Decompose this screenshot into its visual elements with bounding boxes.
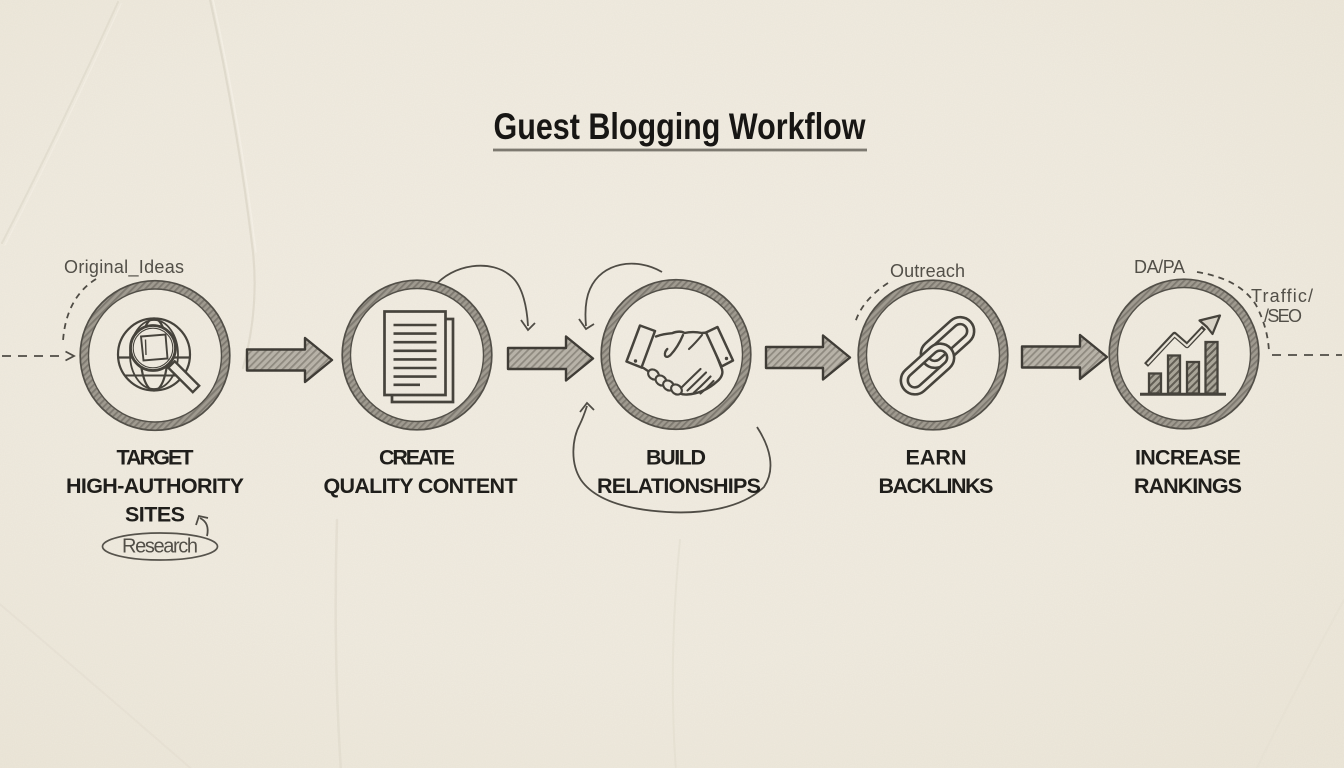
svg-text:SITES: SITES	[125, 503, 185, 527]
svg-text:HIGH-AUTHORITY: HIGH-AUTHORITY	[66, 474, 244, 498]
svg-text:CREATE: CREATE	[379, 446, 455, 470]
svg-text:BUILD: BUILD	[646, 446, 706, 470]
svg-text:DA/PA: DA/PA	[1134, 257, 1185, 277]
svg-text:Research: Research	[122, 536, 198, 558]
svg-text:Guest Blogging Workflow: Guest Blogging Workflow	[494, 106, 866, 147]
svg-text:/SEO: /SEO	[1264, 306, 1302, 326]
svg-text:RANKINGS: RANKINGS	[1134, 474, 1242, 498]
svg-text:EARN: EARN	[906, 446, 967, 470]
svg-text:Traffic/: Traffic/	[1251, 286, 1313, 306]
svg-text:RELATIONSHIPS: RELATIONSHIPS	[597, 474, 761, 498]
svg-text:BACKLINKS: BACKLINKS	[879, 474, 994, 498]
svg-text:TARGET: TARGET	[117, 446, 194, 470]
svg-text:Outreach: Outreach	[890, 261, 965, 281]
svg-text:Original_Ideas: Original_Ideas	[64, 257, 184, 278]
svg-text:INCREASE: INCREASE	[1135, 446, 1241, 470]
svg-text:QUALITY CONTENT: QUALITY CONTENT	[324, 474, 518, 498]
